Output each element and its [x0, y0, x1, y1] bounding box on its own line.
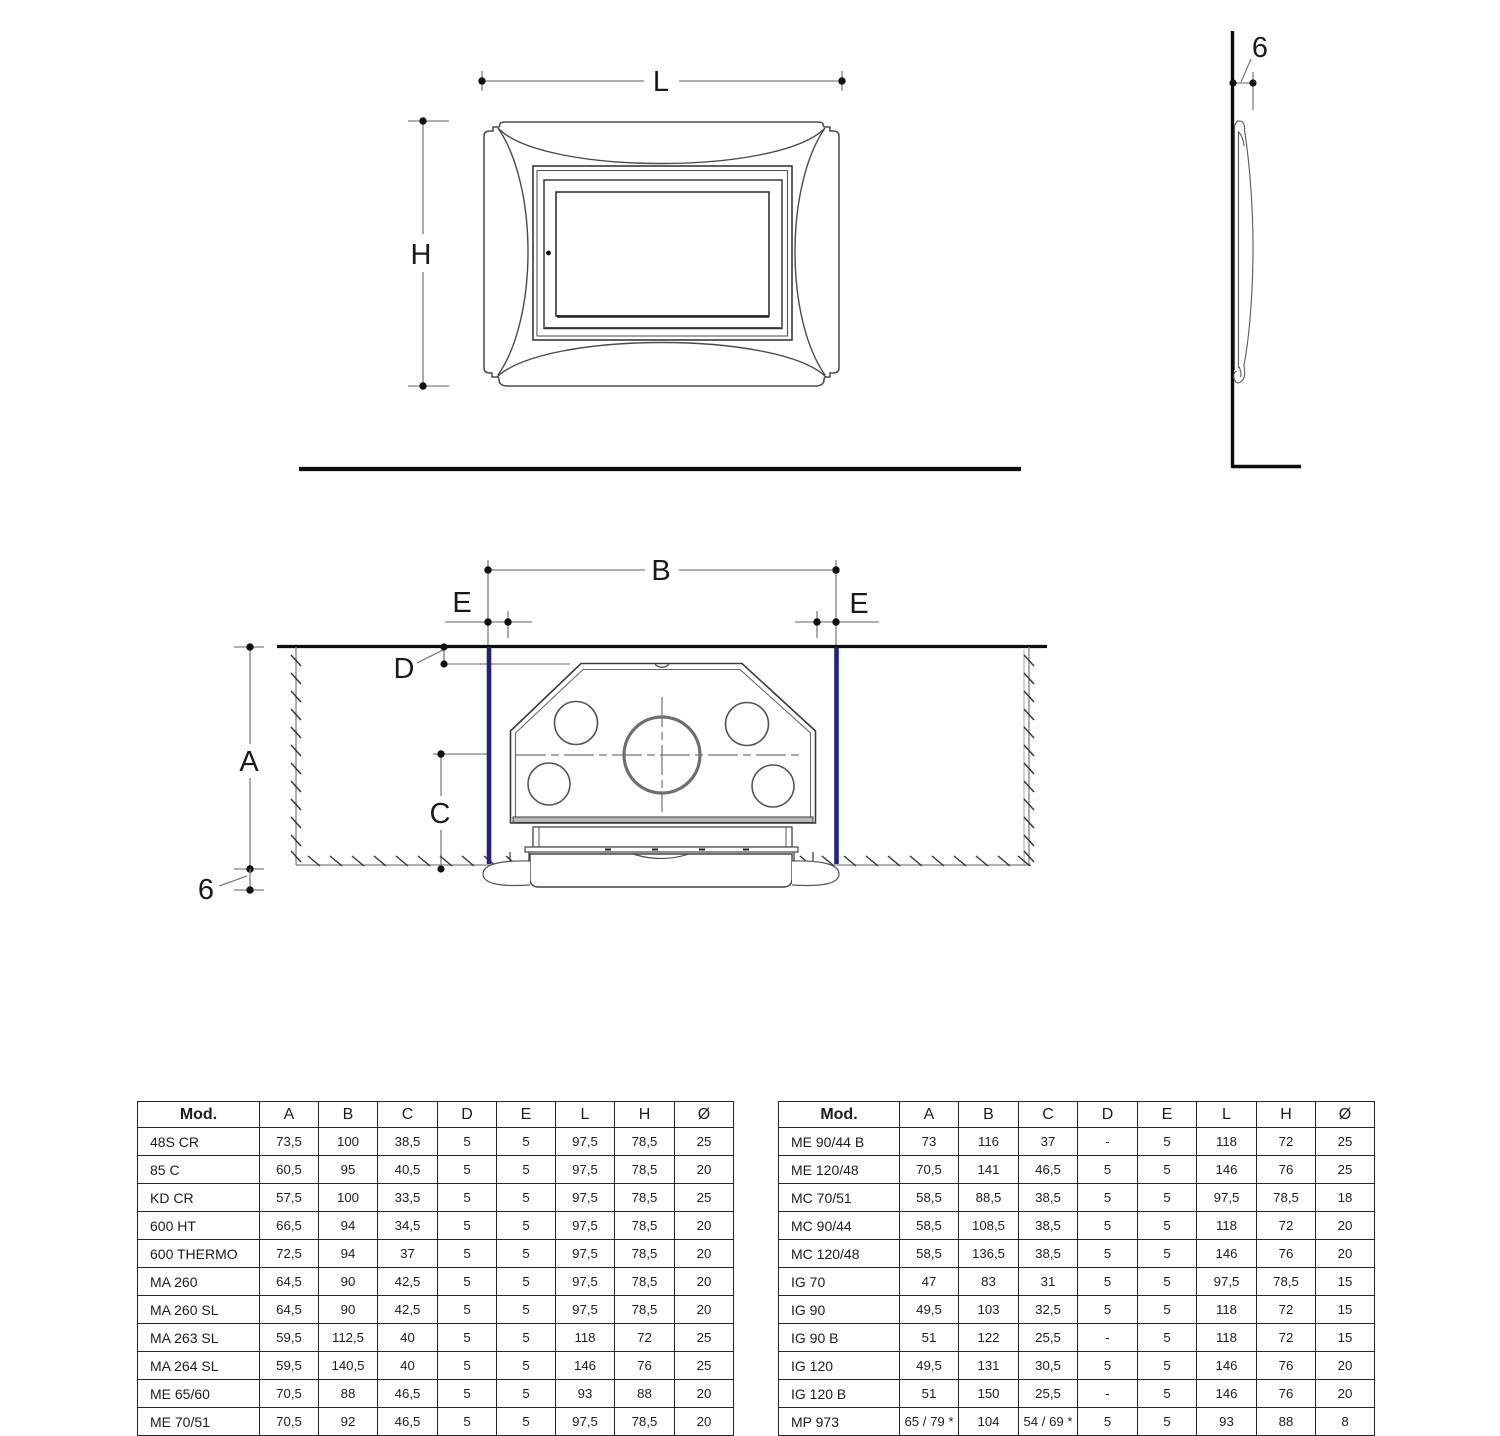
svg-text:L: L: [653, 66, 669, 98]
svg-text:6: 6: [1252, 32, 1268, 64]
svg-text:C: C: [430, 798, 451, 830]
svg-text:A: A: [239, 746, 259, 778]
svg-text:B: B: [651, 555, 670, 587]
svg-text:E: E: [452, 587, 471, 619]
svg-text:E: E: [849, 588, 868, 620]
svg-text:D: D: [394, 653, 415, 685]
svg-text:H: H: [411, 239, 432, 271]
svg-text:6: 6: [198, 874, 214, 906]
